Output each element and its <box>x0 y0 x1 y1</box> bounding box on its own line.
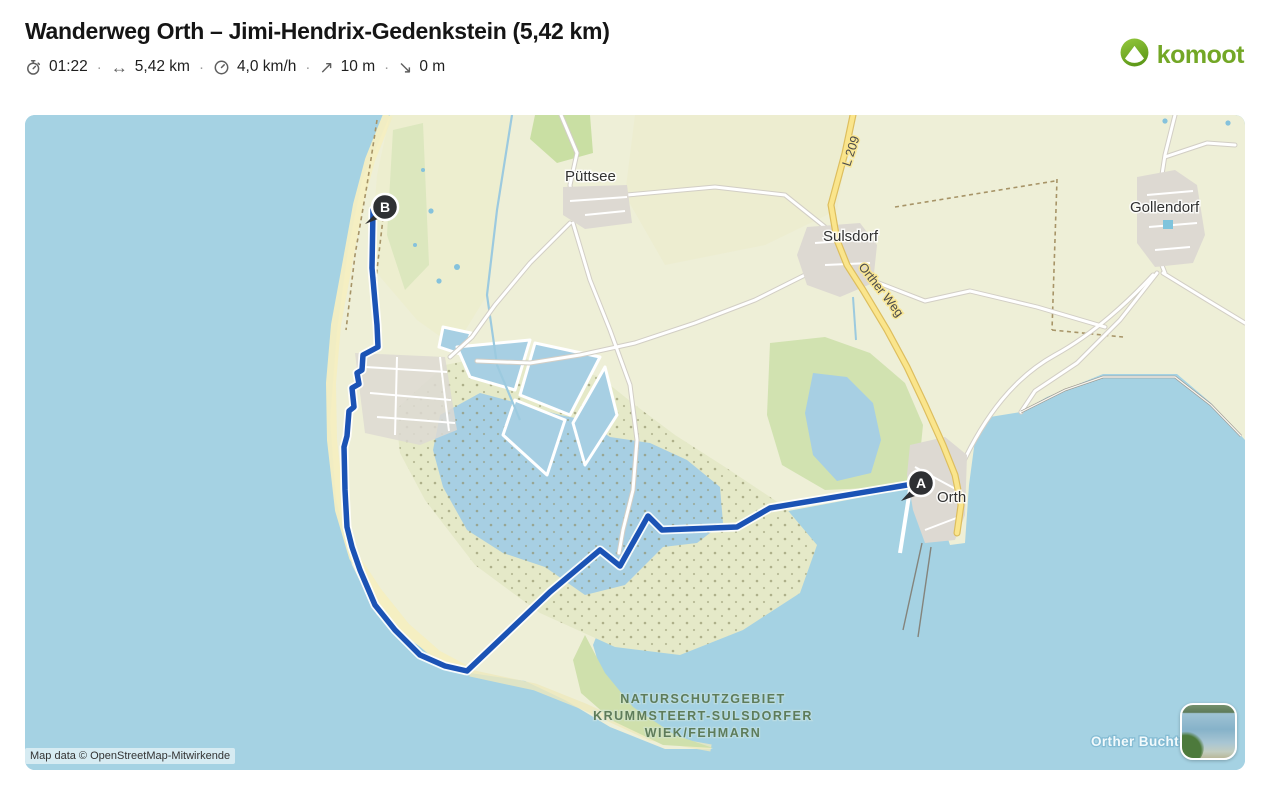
label-gollendorf: Gollendorf <box>1130 199 1200 216</box>
map-attribution[interactable]: Map data © OpenStreetMap-Mitwirkende <box>25 748 235 764</box>
svg-text:WIEK/FEHMARN: WIEK/FEHMARN <box>645 726 762 740</box>
page-title: Wanderweg Orth – Jimi-Hendrix-Gedenkstei… <box>25 18 1245 45</box>
svg-text:KRUMMSTEERT-SULSDORFER: KRUMMSTEERT-SULSDORFER <box>593 709 813 723</box>
stat-separator: · <box>384 59 389 76</box>
stat-separator: · <box>199 59 204 76</box>
label-orth: Orth <box>937 489 966 506</box>
label-sulsdorf: Sulsdorf <box>823 228 879 245</box>
marker-start-letter: A <box>916 475 926 491</box>
stat-descent: ↘ 0 m <box>398 58 445 76</box>
stat-separator: · <box>305 59 310 76</box>
stopwatch-icon <box>25 59 42 76</box>
stat-duration-value: 01:22 <box>49 58 88 76</box>
stat-duration: 01:22 <box>25 58 88 76</box>
stat-descent-value: 0 m <box>419 58 445 76</box>
distance-icon: ↔ <box>111 59 128 76</box>
komoot-logo-icon <box>1119 37 1150 73</box>
marker-end-letter: B <box>380 199 390 215</box>
route-map[interactable]: B A Püttsee Sulsdorf Gollendorf Orth L 2… <box>25 115 1245 770</box>
ascent-icon: ↗ <box>319 59 333 76</box>
komoot-logo-text: komoot <box>1157 41 1244 70</box>
label-orther-bucht: Orther Bucht <box>1091 734 1179 749</box>
stat-separator: · <box>97 59 102 76</box>
stat-ascent-value: 10 m <box>341 58 375 76</box>
gollendorf-pond <box>1163 220 1173 229</box>
tour-stats: 01:22 · ↔ 5,42 km · 4,0 km/h · ↗ 10 m · … <box>25 58 1245 76</box>
orther-bucht-thumbnail[interactable] <box>1180 703 1237 760</box>
komoot-logo[interactable]: komoot <box>1119 37 1244 73</box>
stat-avg-speed: 4,0 km/h <box>213 58 296 76</box>
label-puettsee: Püttsee <box>565 168 616 185</box>
stat-avg-speed-value: 4,0 km/h <box>237 58 296 76</box>
speedometer-icon <box>213 59 230 76</box>
svg-text:NATURSCHUTZGEBIET: NATURSCHUTZGEBIET <box>620 692 786 706</box>
tour-header: Wanderweg Orth – Jimi-Hendrix-Gedenkstei… <box>25 18 1245 76</box>
stat-distance-value: 5,42 km <box>135 58 190 76</box>
stat-distance: ↔ 5,42 km <box>111 58 190 76</box>
descent-icon: ↘ <box>398 59 412 76</box>
map-canvas: B A Püttsee Sulsdorf Gollendorf Orth L 2… <box>25 115 1245 770</box>
stat-ascent: ↗ 10 m <box>319 58 375 76</box>
